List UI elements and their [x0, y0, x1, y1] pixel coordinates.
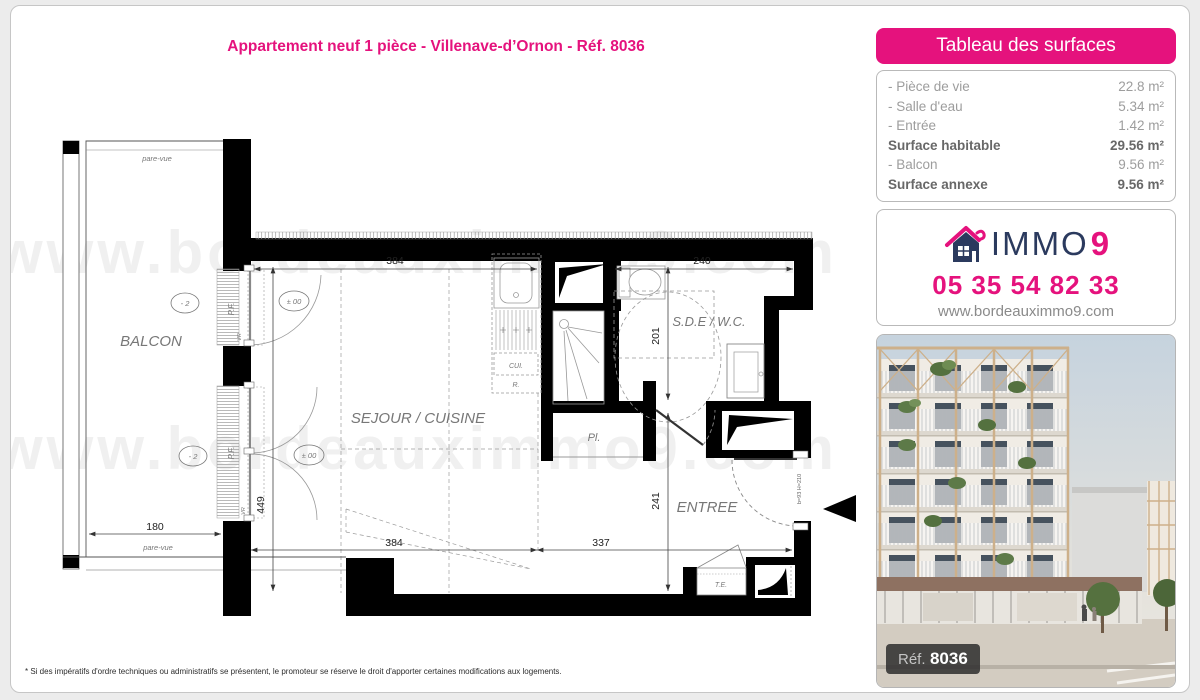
surface-row: - Entrée1.42 m²: [888, 116, 1164, 136]
building-photo: Réf. 8036: [876, 334, 1176, 688]
surface-row: - Pièce de vie22.8 m²: [888, 77, 1164, 97]
dim-sejour-width: 384: [386, 255, 404, 267]
dim-entree-depth: 241: [650, 492, 662, 510]
brand-number: 9: [1091, 225, 1109, 263]
surfaces-table: - Pièce de vie22.8 m² - Salle d'eau5.34 …: [876, 70, 1176, 202]
sejour-label: SEJOUR / CUISINE: [351, 410, 486, 427]
pf-label: P.F.: [227, 447, 236, 460]
cuisine-unit-label: CUI.: [509, 363, 523, 370]
level-label: - 2: [181, 299, 191, 308]
shower: [553, 311, 604, 404]
closet: Pl.: [553, 432, 643, 457]
surface-value: 9.56 m²: [1117, 175, 1164, 195]
footnote: * Si des impératifs d'ordre techniques o…: [25, 667, 845, 676]
agency-logo: IMMO9: [877, 223, 1175, 265]
ref-badge: Réf. 8036: [886, 644, 980, 674]
dim-sde-width: 240: [693, 255, 711, 267]
surface-label: - Pièce de vie: [888, 77, 970, 97]
surface-label: - Salle d'eau: [888, 97, 963, 117]
level-label: - 2: [189, 452, 199, 461]
building-floors: [877, 365, 1069, 583]
surface-label: Surface habitable: [888, 136, 1001, 156]
agency-panel: IMMO9 05 35 54 82 33 www.bordeauximmo9.c…: [876, 209, 1176, 326]
balcon-label: BALCON: [120, 333, 182, 350]
flyer-card: www.bordeauximmo9.com www.bordeauximmo9.…: [10, 5, 1190, 693]
level-label: ± 00: [302, 451, 317, 460]
balcony: pare-vue pare-vue BALCON - 2 - 2: [63, 141, 346, 570]
dim-sejour-depth: 449: [255, 496, 267, 514]
house-icon: [943, 223, 989, 265]
dim-balcon-width: 180: [146, 521, 164, 533]
dim-sde-depth: 201: [650, 327, 662, 345]
building-render: [877, 335, 1175, 687]
hatch-strips: [217, 232, 812, 518]
surface-row: - Balcon9.56 m²: [888, 155, 1164, 175]
fridge-label: R.: [513, 382, 520, 389]
entree-label: ENTREE: [677, 499, 739, 516]
surface-value: 29.56 m²: [1110, 136, 1164, 156]
te-box: T.E.: [697, 545, 746, 595]
ref-label: Réf.: [898, 651, 926, 668]
surface-label: - Balcon: [888, 155, 938, 175]
vr-label: VR: [237, 333, 243, 341]
ref-number: 8036: [930, 649, 968, 668]
brand-text: IMMO: [991, 225, 1089, 263]
kitchen-unit: CUI. R.: [492, 254, 541, 393]
pare-vue-label-bottom: pare-vue: [142, 543, 173, 552]
surface-row-total: Surface annexe9.56 m²: [888, 175, 1164, 195]
right-column: Tableau des surfaces - Pièce de vie22.8 …: [876, 6, 1176, 692]
construction-lines: [341, 269, 538, 593]
surface-value: 5.34 m²: [1118, 97, 1164, 117]
dim-sejour-width-bottom: 384: [385, 537, 403, 549]
placard-label: Pl.: [588, 432, 601, 444]
surface-value: 1.42 m²: [1118, 116, 1164, 136]
surfaces-header: Tableau des surfaces: [876, 28, 1176, 64]
surface-value: 22.8 m²: [1118, 77, 1164, 97]
level-label: ± 00: [287, 297, 302, 306]
surface-label: - Entrée: [888, 116, 936, 136]
surface-value: 9.56 m²: [1118, 155, 1164, 175]
walls: [223, 139, 813, 616]
door-spec-label: b=93 H=210: [797, 474, 803, 504]
entrance-arrow-icon: [823, 495, 856, 522]
te-label: T.E.: [715, 582, 727, 589]
pf-label: P.F.: [227, 303, 236, 316]
french-windows: P.F. VR P.F. VR ± 00 ± 00: [227, 265, 324, 521]
vr-label: VR: [241, 507, 247, 515]
sde-label: S.D.E / W.C.: [672, 314, 745, 329]
agency-phone: 05 35 54 82 33: [877, 270, 1175, 301]
agency-website: www.bordeauximmo9.com: [877, 303, 1175, 320]
dim-entree-width: 337: [592, 537, 610, 549]
toilet: [617, 266, 665, 299]
surface-row-total: Surface habitable29.56 m²: [888, 136, 1164, 156]
surface-label: Surface annexe: [888, 175, 988, 195]
pare-vue-label-top: pare-vue: [141, 154, 172, 163]
surface-row: - Salle d'eau5.34 m²: [888, 97, 1164, 117]
